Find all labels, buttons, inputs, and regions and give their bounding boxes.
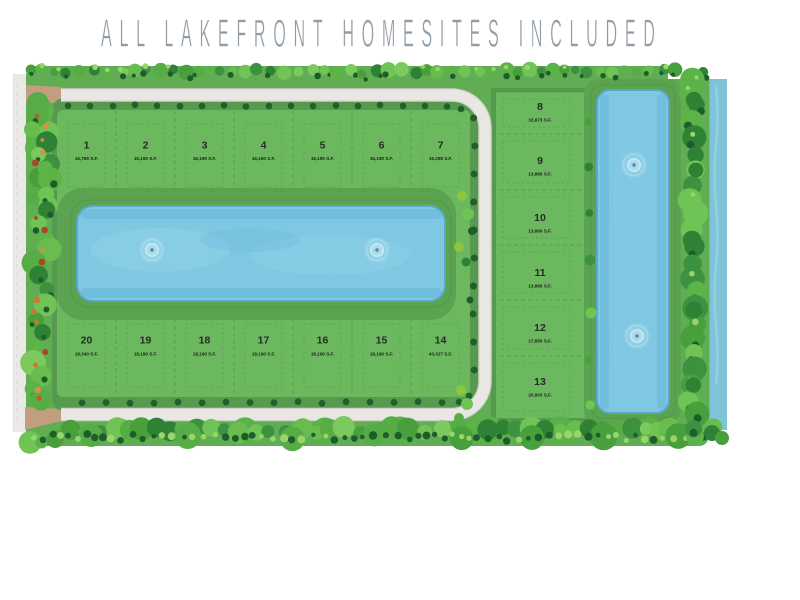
svg-text:18: 18	[199, 335, 211, 347]
svg-text:13,860 S.F.: 13,860 S.F.	[528, 284, 551, 289]
svg-text:16,190 S.F.: 16,190 S.F.	[252, 156, 275, 161]
svg-text:13: 13	[534, 376, 546, 388]
svg-text:10: 10	[534, 212, 546, 224]
svg-text:13,860 S.F.: 13,860 S.F.	[528, 229, 551, 234]
svg-text:18,340 S.F.: 18,340 S.F.	[75, 352, 98, 357]
svg-text:1: 1	[84, 140, 90, 152]
svg-text:2: 2	[143, 140, 149, 152]
svg-text:18,190 S.F.: 18,190 S.F.	[134, 352, 157, 357]
svg-text:20: 20	[81, 335, 93, 347]
svg-text:18,190 S.F.: 18,190 S.F.	[193, 352, 216, 357]
svg-text:20,903 S.F.: 20,903 S.F.	[528, 393, 551, 398]
svg-text:16,190 S.F.: 16,190 S.F.	[193, 156, 216, 161]
svg-text:13,860 S.F.: 13,860 S.F.	[528, 172, 551, 177]
svg-text:16,190 S.F.: 16,190 S.F.	[370, 156, 393, 161]
svg-text:17: 17	[258, 335, 270, 347]
svg-text:17,850 S.F.: 17,850 S.F.	[528, 339, 551, 344]
svg-text:12: 12	[534, 322, 546, 334]
svg-text:43,327 S.F.: 43,327 S.F.	[429, 352, 452, 357]
svg-text:4: 4	[261, 140, 267, 152]
svg-text:16: 16	[317, 335, 329, 347]
svg-text:9: 9	[537, 155, 543, 167]
svg-text:16,873 S.F.: 16,873 S.F.	[528, 118, 551, 123]
svg-text:18,190 S.F.: 18,190 S.F.	[311, 352, 334, 357]
svg-text:11: 11	[534, 267, 545, 279]
svg-text:19,298 S.F.: 19,298 S.F.	[429, 156, 452, 161]
svg-text:7: 7	[438, 140, 444, 152]
svg-text:5: 5	[320, 140, 326, 152]
svg-text:18,190 S.F.: 18,190 S.F.	[252, 352, 275, 357]
svg-text:14: 14	[435, 335, 447, 347]
svg-text:3: 3	[202, 140, 208, 152]
svg-text:16,789 S.F.: 16,789 S.F.	[75, 156, 98, 161]
svg-text:16,190 S.F.: 16,190 S.F.	[311, 156, 334, 161]
svg-text:6: 6	[379, 140, 385, 152]
svg-text:19: 19	[140, 335, 152, 347]
svg-text:16,190 S.F.: 16,190 S.F.	[134, 156, 157, 161]
svg-text:8: 8	[537, 101, 543, 113]
svg-text:18,190 S.F.: 18,190 S.F.	[370, 352, 393, 357]
svg-text:15: 15	[376, 335, 388, 347]
